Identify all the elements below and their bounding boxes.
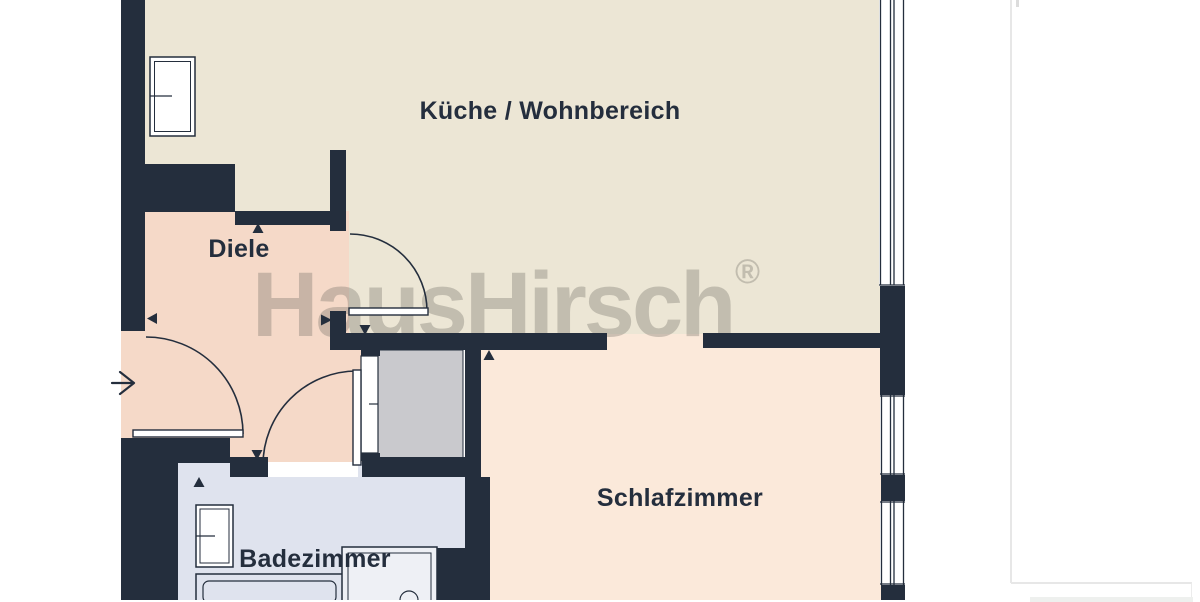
door-leaf xyxy=(353,370,361,465)
schlafzimmer-floor xyxy=(481,334,881,600)
wall-south-kueche-right xyxy=(703,333,883,348)
shaft-box xyxy=(361,350,463,460)
door-leaf xyxy=(349,308,428,315)
room-label-diele: Diele xyxy=(208,235,269,263)
wall-diele-top-thin xyxy=(235,211,330,225)
wall-bad-corner xyxy=(437,548,490,600)
wall-right-bottom xyxy=(881,585,905,600)
wall-shaft-stub-top xyxy=(361,348,380,356)
door-threshold xyxy=(268,462,358,477)
wall-stub-door xyxy=(330,311,346,333)
room-label-schlafzimmer: Schlafzimmer xyxy=(597,484,763,512)
page-column-divider-tick xyxy=(1016,0,1019,7)
page-column-divider xyxy=(1010,0,1012,583)
wall-diele-schlafzimmer xyxy=(465,348,481,477)
room-label-kueche: Küche / Wohnbereich xyxy=(420,97,681,125)
wall-between-windows xyxy=(881,475,905,501)
room-label-badezimmer: Badezimmer xyxy=(239,545,391,573)
window-icon xyxy=(880,501,905,585)
floorplan-drawing: HausHirsch ® xyxy=(0,0,1200,600)
wall-pillar xyxy=(330,150,346,231)
window-icon xyxy=(879,0,905,286)
wall-south-kueche-left xyxy=(330,333,607,350)
bath-cabinet-fixture xyxy=(196,505,233,567)
wall-bad-top-left xyxy=(121,438,230,463)
window-icon xyxy=(880,395,905,475)
wall-bad-top-right xyxy=(362,457,465,477)
wall-left-lower xyxy=(121,463,178,600)
kitchen-fixture xyxy=(150,57,195,136)
shaft-fill xyxy=(378,350,463,460)
wall-right-corner xyxy=(880,285,905,395)
sidebar-bottom-card xyxy=(1011,582,1192,600)
wall-diele-top-thick xyxy=(121,164,235,212)
door-leaf xyxy=(133,430,243,437)
watermark-registered-icon: ® xyxy=(735,253,760,291)
bathtub-fixture xyxy=(196,574,343,600)
wall-bad-top-mid xyxy=(230,457,268,477)
floorplan-canvas: HausHirsch ® xyxy=(0,0,1200,600)
